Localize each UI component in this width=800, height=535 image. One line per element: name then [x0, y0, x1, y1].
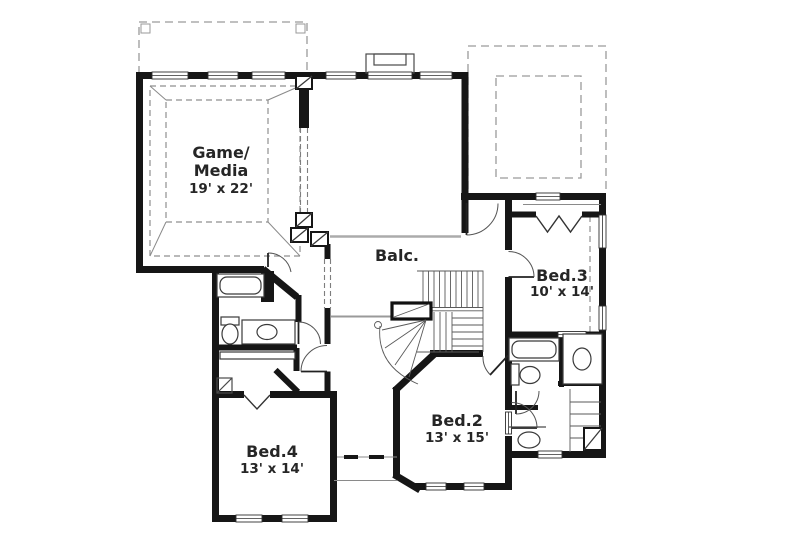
toilet-icon [222, 324, 238, 344]
bed2-label: Bed.2 [431, 411, 483, 430]
porch-below-outline [139, 22, 307, 75]
bed4-label: Bed.4 [246, 442, 298, 461]
toilet-icon [520, 367, 540, 384]
bed3-closet-bifold-doors [536, 216, 582, 232]
game-media-label-2: Media [194, 161, 249, 180]
chimney-bay [366, 54, 414, 73]
bath2-door-swing [516, 391, 539, 414]
hall-closet-door-swing [467, 204, 499, 236]
bath-door-swing [299, 322, 321, 344]
stair-treads-return [452, 312, 483, 352]
stair-treads-lower [434, 312, 446, 352]
balcony-label: Balc. [375, 246, 419, 265]
hall-door-swing [301, 346, 327, 372]
bathroom-right-fixtures [509, 334, 602, 452]
roof-below-lines [334, 457, 397, 481]
bed3-size: 10' x 14' [530, 284, 594, 300]
open-to-below-outline [468, 46, 606, 194]
sink-icon [573, 348, 591, 370]
media-wall-opening [301, 128, 308, 213]
sink-icon [257, 325, 277, 340]
post-marker [296, 24, 305, 33]
bed2-size: 13' x 15' [425, 430, 489, 446]
toilet-tank-icon [511, 364, 519, 385]
linen-shelf [220, 352, 295, 359]
bed4-size: 13' x 14' [240, 461, 304, 477]
bed3-door-swing [509, 252, 535, 278]
bed3-label: Bed.3 [536, 266, 588, 285]
wall-hatch-boxes [291, 76, 328, 246]
hall-archway [325, 259, 331, 308]
bed4-door-swing [244, 395, 270, 409]
floor-plan-page: Game/ Media 19' x 22' Balc. Bed.3 10' x … [0, 0, 800, 535]
game-media-size: 19' x 22' [189, 181, 253, 197]
floor-plan-drawing: Game/ Media 19' x 22' Balc. Bed.3 10' x … [0, 0, 800, 535]
staircase [375, 271, 484, 384]
post-marker [141, 24, 150, 33]
rail-newel [375, 322, 382, 329]
game-media-label: Game/ [192, 143, 249, 162]
open-to-below-inner-outline [496, 76, 581, 178]
bed2-door-swing [483, 356, 490, 375]
sink-icon [518, 432, 540, 448]
